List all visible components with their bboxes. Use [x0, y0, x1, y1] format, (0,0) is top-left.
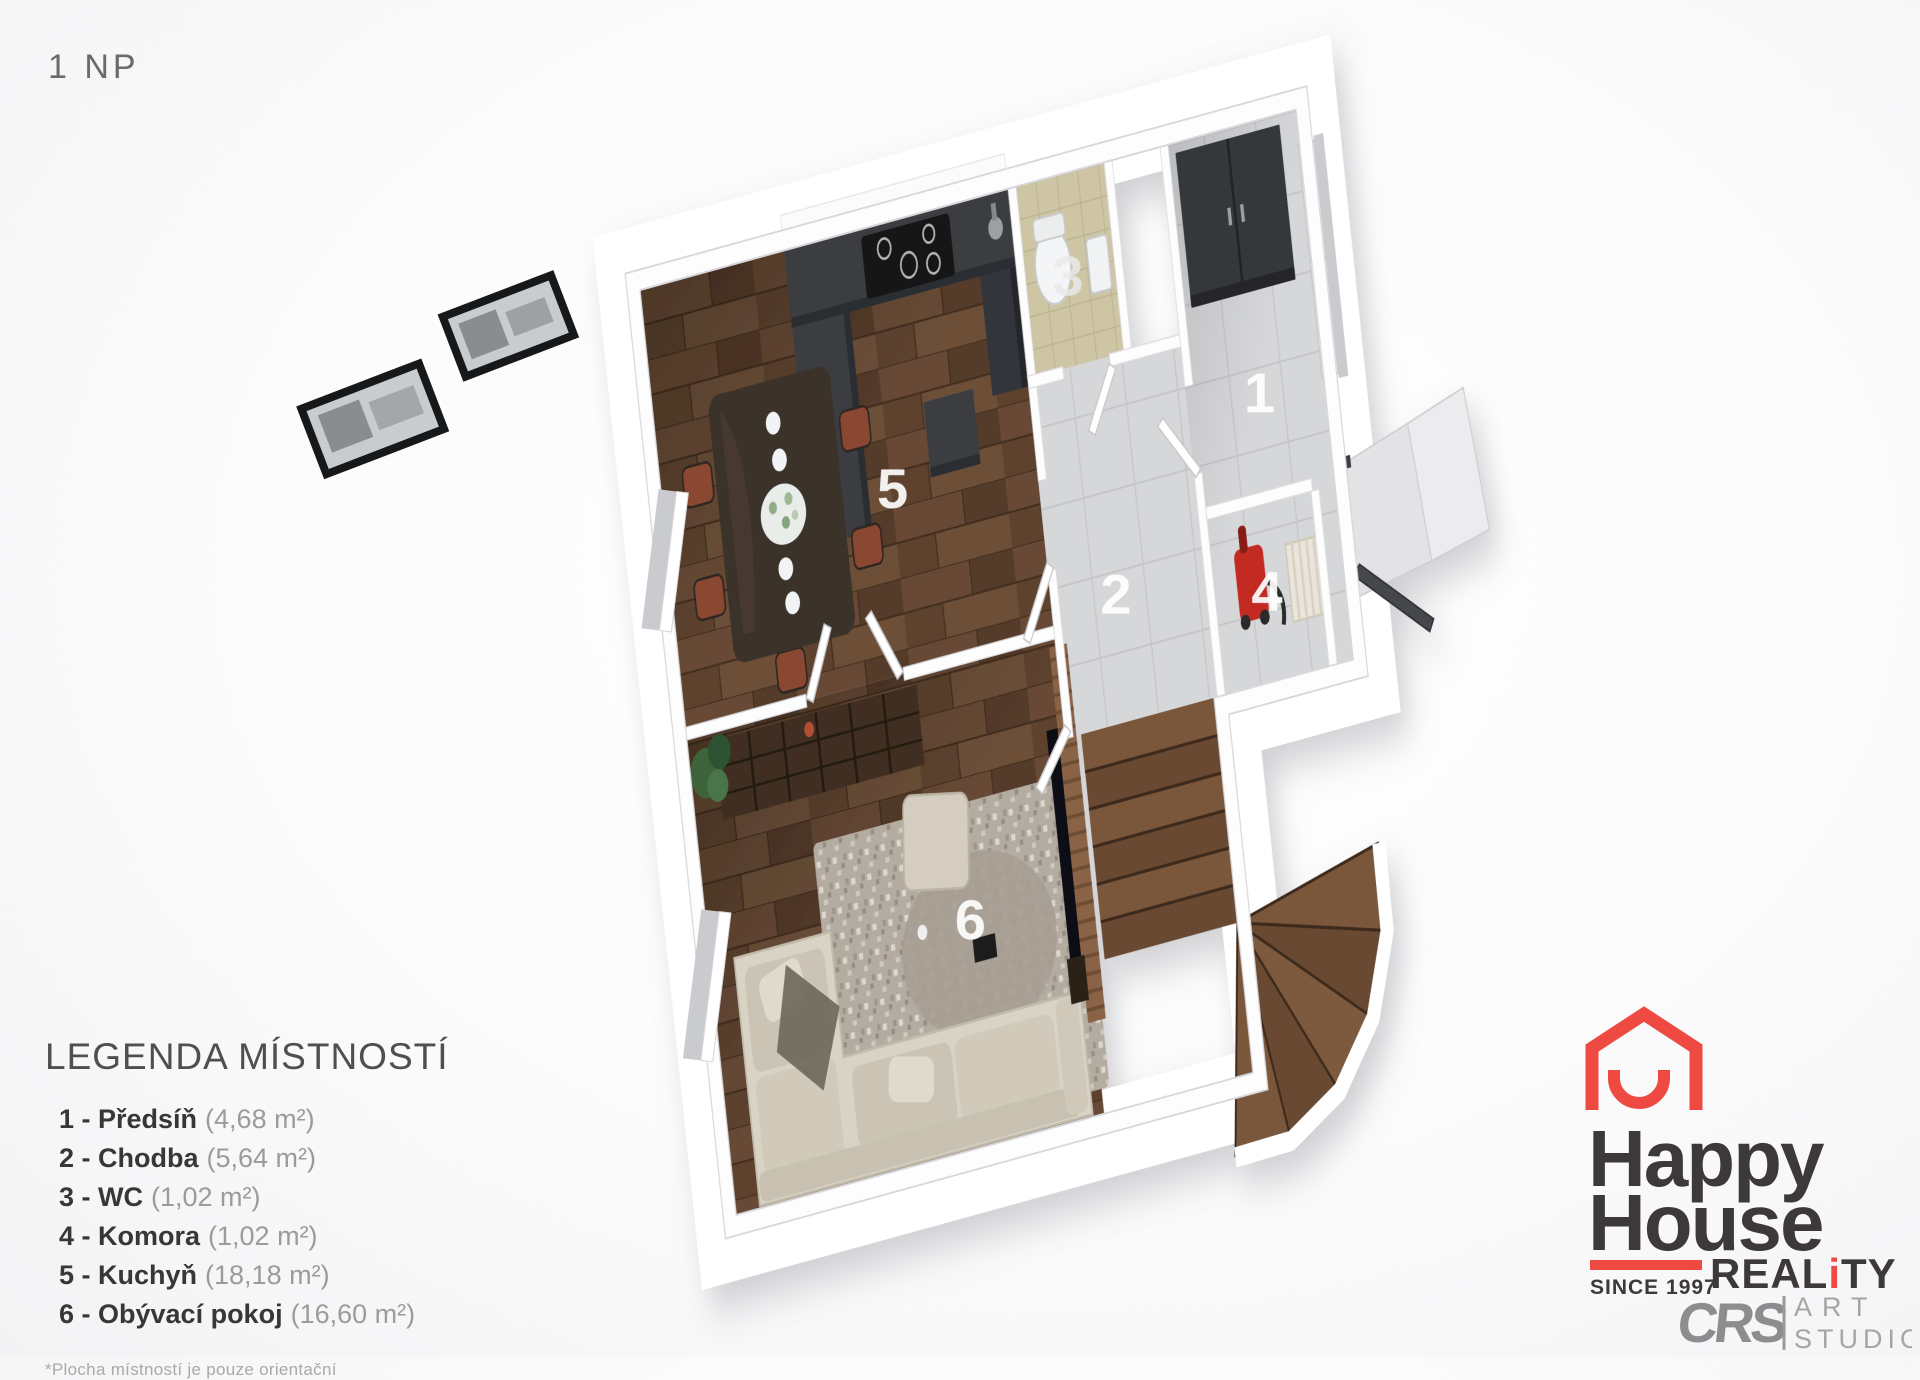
- room-number-5: 5: [877, 457, 908, 520]
- logo-reality: REALiTY: [1710, 1250, 1897, 1297]
- room-area: (18,18 m²): [205, 1260, 330, 1290]
- room-number-1: 1: [1244, 361, 1275, 424]
- room-label: 4 - Komora: [59, 1221, 200, 1251]
- room-area: (1,02 m²): [151, 1182, 261, 1212]
- room-number-2: 2: [1100, 563, 1131, 626]
- legend-rows: 1 - Předsíň(4,68 m²) 2 - Chodba(5,64 m²)…: [59, 1100, 605, 1334]
- logo-studio: STUDIO: [1794, 1324, 1912, 1354]
- smile-icon: [1614, 1070, 1664, 1103]
- room-label: 2 - Chodba: [59, 1143, 199, 1173]
- room-number-3: 3: [1052, 244, 1083, 307]
- happy-house-icon: [1592, 1014, 1696, 1110]
- room-label: 1 - Předsíň: [59, 1104, 197, 1134]
- legend-row: 3 - WC(1,02 m²): [59, 1178, 605, 1217]
- legend: LEGENDA MÍSTNOSTÍ 1 - Předsíň(4,68 m²) 2…: [45, 1036, 605, 1380]
- room-area: (16,60 m²): [291, 1299, 416, 1329]
- legend-row: 6 - Obývací pokoj(16,60 m²): [59, 1295, 605, 1334]
- wc-sink: [1086, 234, 1113, 295]
- crs-mark: CRS: [1675, 1291, 1790, 1354]
- room-label: 6 - Obývací pokoj: [59, 1299, 283, 1329]
- room-area: (1,02 m²): [208, 1221, 318, 1251]
- room-number-6: 6: [955, 888, 986, 951]
- legend-footnote: *Plocha místností je pouze orientační: [45, 1360, 605, 1380]
- logo-art: ART: [1794, 1292, 1878, 1322]
- legend-row: 4 - Komora(1,02 m²): [59, 1217, 605, 1256]
- happy-house-logo: Happy House SINCE 1997 REALiTY CRS ART S…: [1572, 998, 1912, 1354]
- page: 1 NP: [0, 0, 1920, 1357]
- room-number-4: 4: [1251, 560, 1282, 623]
- legend-row: 1 - Předsíň(4,68 m²): [59, 1100, 605, 1139]
- legend-title: LEGENDA MÍSTNOSTÍ: [45, 1036, 605, 1078]
- building: 1 2 3 4 5 6: [624, 35, 1546, 1296]
- logo-red-bar: [1590, 1260, 1702, 1270]
- ottoman: [903, 793, 969, 892]
- legend-row: 2 - Chodba(5,64 m²): [59, 1139, 605, 1178]
- logo-crs: CRS: [1675, 1291, 1790, 1354]
- wall-pictures: [296, 270, 579, 479]
- room-area: (5,64 m²): [207, 1143, 317, 1173]
- legend-row: 5 - Kuchyň(18,18 m²): [59, 1256, 605, 1295]
- room-area: (4,68 m²): [205, 1104, 315, 1134]
- room-label: 5 - Kuchyň: [59, 1260, 197, 1290]
- dining-chair: [839, 405, 872, 453]
- room-label: 3 - WC: [59, 1182, 143, 1212]
- dining-chair: [693, 573, 726, 621]
- dining-chair: [775, 646, 808, 694]
- dining-chair: [851, 522, 884, 570]
